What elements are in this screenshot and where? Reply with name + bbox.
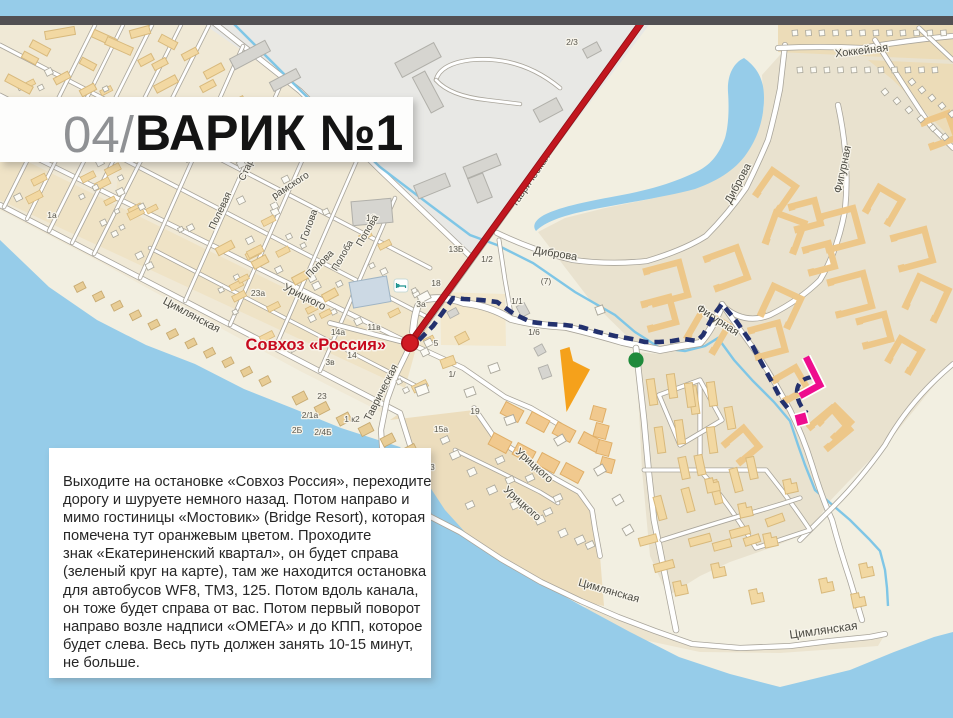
svg-text:1/1: 1/1: [511, 296, 523, 306]
svg-text:2Б: 2Б: [292, 425, 303, 435]
svg-text:15а: 15а: [434, 424, 448, 434]
svg-text:1/2: 1/2: [481, 254, 493, 264]
svg-text:(7): (7): [541, 276, 552, 286]
svg-text:23: 23: [317, 391, 327, 401]
svg-text:5: 5: [434, 338, 439, 348]
svg-text:13Б: 13Б: [448, 244, 463, 254]
svg-text:3в: 3в: [325, 357, 335, 367]
svg-text:1/: 1/: [448, 369, 456, 379]
svg-text:3а: 3а: [416, 299, 426, 309]
svg-text:18: 18: [431, 278, 441, 288]
svg-text:2/4Б: 2/4Б: [314, 427, 332, 437]
svg-text:2/1а: 2/1а: [302, 410, 319, 420]
svg-text:23а: 23а: [251, 288, 265, 298]
svg-text:1/6: 1/6: [528, 327, 540, 337]
svg-text:11в: 11в: [367, 322, 381, 332]
svg-text:1а: 1а: [47, 210, 57, 220]
svg-text:1 к2: 1 к2: [344, 414, 360, 424]
svg-text:19: 19: [470, 406, 480, 416]
svg-text:2/3: 2/3: [566, 37, 578, 47]
svg-text:Совхоз «Россия»: Совхоз «Россия»: [246, 336, 386, 354]
